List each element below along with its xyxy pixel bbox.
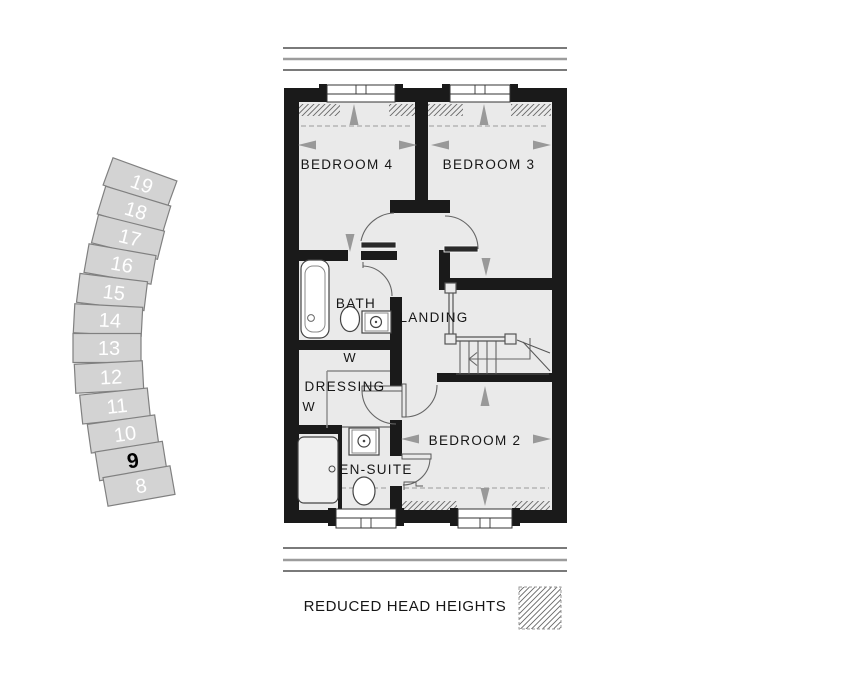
roof-lines-top (283, 48, 567, 70)
reduced-head-heights-swatch (519, 587, 561, 629)
plot-number-15: 15 (101, 281, 126, 306)
site-plot-13: 13 (73, 334, 141, 363)
bathtub-icon (301, 260, 329, 338)
window-top-bedroom4 (319, 84, 403, 102)
plot-number-11: 11 (106, 395, 129, 419)
plot-number-16: 16 (109, 253, 135, 279)
floor-plan: BEDROOM 4 BEDROOM 3 BATH LANDING W DRESS… (284, 84, 567, 528)
window-bottom-ensuite (328, 508, 404, 528)
floorplan-svg: 1918171615141312111098 (0, 0, 857, 689)
landing-label: LANDING (399, 310, 468, 325)
plot-number-12: 12 (99, 366, 122, 389)
bath-basin-icon (362, 311, 391, 333)
ensuite-toilet-icon (353, 477, 375, 505)
plot-number-14: 14 (98, 310, 121, 333)
legend: REDUCED HEAD HEIGHTS (304, 587, 561, 629)
dressing-label: DRESSING (305, 379, 386, 394)
plot-number-10: 10 (113, 422, 138, 447)
wardrobe-top-label: W (343, 350, 356, 365)
roof-lines-bottom (283, 548, 567, 571)
plot-number-13: 13 (98, 338, 120, 360)
bath-label: BATH (336, 296, 376, 311)
bedroom4-label: BEDROOM 4 (301, 157, 394, 172)
floorplan-page: 1918171615141312111098 (0, 0, 857, 689)
ensuite-label: EN-SUITE (339, 462, 412, 477)
site-plan-strip: 1918171615141312111098 (73, 158, 177, 506)
wardrobe-left-label: W (302, 399, 315, 414)
window-bottom-bedroom2 (450, 508, 520, 528)
bedroom2-label: BEDROOM 2 (429, 433, 522, 448)
window-top-bedroom3 (442, 84, 518, 102)
bedroom3-label: BEDROOM 3 (443, 157, 536, 172)
site-plot-14: 14 (73, 304, 142, 337)
legend-label: REDUCED HEAD HEIGHTS (304, 598, 507, 615)
shower-icon (298, 437, 338, 503)
site-plot-12: 12 (74, 361, 143, 394)
